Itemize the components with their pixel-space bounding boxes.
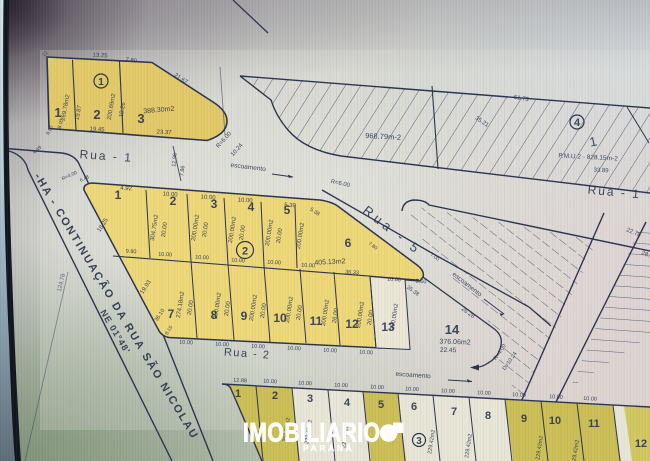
svg-text:PARANÁ: PARANÁ <box>303 443 354 453</box>
